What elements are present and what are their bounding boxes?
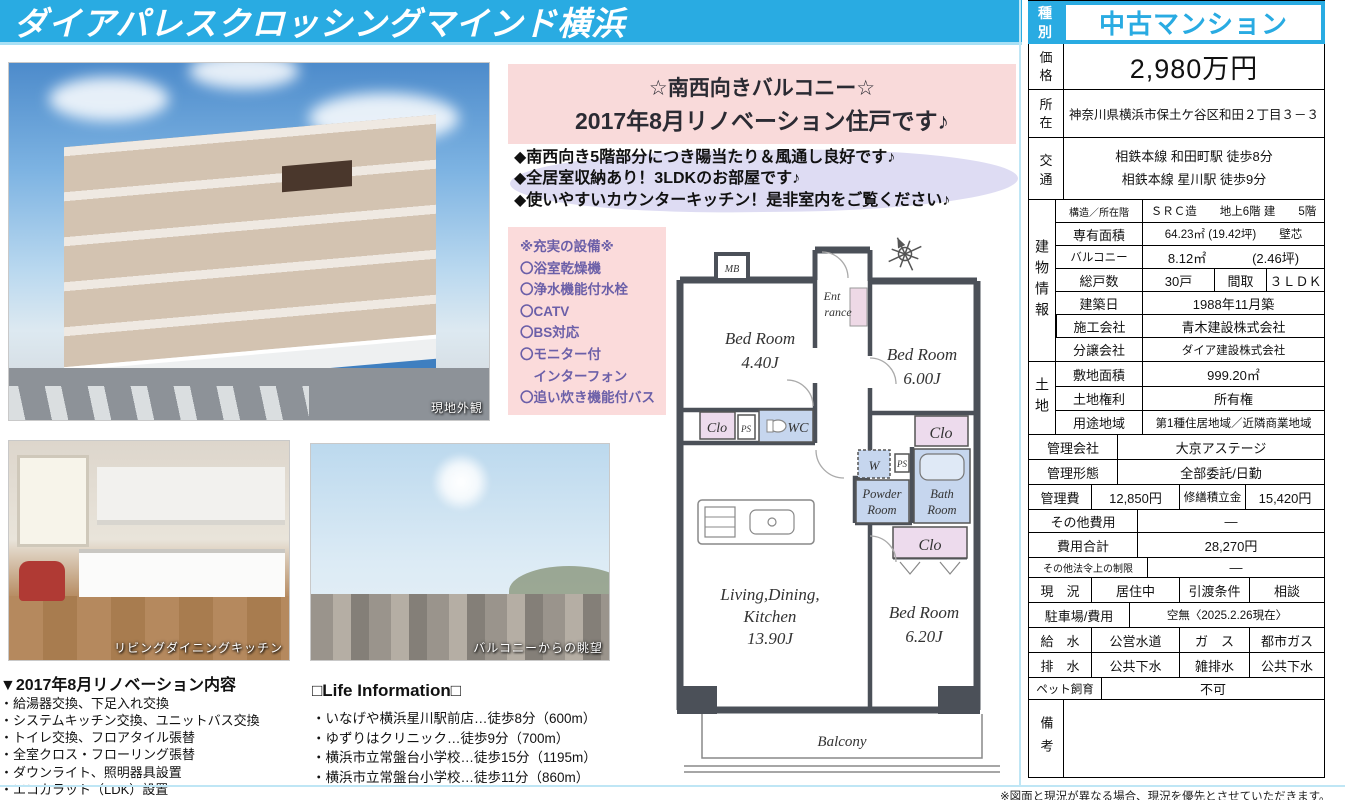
- ldk-label2: Kitchen: [743, 607, 797, 626]
- handover-label: 引渡条件: [1179, 578, 1249, 602]
- life-info-item: ・いなげや横浜星川駅前店…徒歩8分（600m）: [312, 709, 677, 729]
- balcony-label: Balcony: [817, 734, 866, 750]
- photo-caption: 現地外観: [431, 399, 483, 416]
- wc-label: WC: [788, 421, 810, 436]
- horizontal-divider: [0, 785, 1345, 787]
- row-parking: 駐車場/費用 空無〈2025.2.26現在〉: [1028, 603, 1325, 628]
- mgmt-type-value: 全部委託/日勤: [1117, 460, 1324, 484]
- notes-label: 備考: [1029, 700, 1063, 777]
- equipment-item: 〇モニター付: [520, 344, 666, 366]
- entrance-label: rance: [824, 305, 852, 319]
- equipment-title: ※充実の設備※: [520, 236, 666, 258]
- row-sewage: 排 水 公共下水 雑排水 公共下水: [1028, 653, 1325, 678]
- bed3-size: 6.20J: [905, 627, 944, 646]
- total-fee-label: 費用合計: [1029, 533, 1137, 557]
- renovation-item: ・全室クロス・フローリング張替: [0, 746, 312, 763]
- handover-value: 相談: [1249, 578, 1324, 602]
- entrance-label: Ent: [823, 289, 841, 303]
- window-shape: [17, 455, 89, 547]
- balcony-label: バルコニー: [1056, 246, 1142, 268]
- sewage-value: 公共下水: [1091, 653, 1179, 677]
- equipment-box: ※充実の設備※ 〇浴室乾燥機 〇浄水機能付水栓 〇CATV 〇BS対応 〇モニタ…: [508, 227, 666, 415]
- notes-value: [1063, 700, 1324, 777]
- toilet-tank: [767, 420, 773, 432]
- row-location: 所在 神奈川県横浜市保土ケ谷区和田２丁目３－３: [1028, 90, 1325, 138]
- cabinet-shape: [97, 467, 285, 525]
- bed3-label: Bed Room: [889, 603, 959, 622]
- mb-label: MB: [724, 264, 739, 275]
- equipment-item: 〇浴室乾燥機: [520, 258, 666, 280]
- flyer-page: ダイアパレスクロッシングマインド横浜 現地外観 ☆南西向きバルコニー☆ 2017…: [0, 0, 1345, 800]
- zoning-value: 第1種住居地域／近隣商業地域: [1142, 411, 1324, 434]
- renovation-title: ▼2017年8月リノベーション内容: [0, 671, 312, 695]
- property-title: ダイアパレスクロッシングマインド横浜: [0, 0, 625, 45]
- equipment-item: 〇浄水機能付水栓: [520, 279, 666, 301]
- layout-label: 間取: [1214, 269, 1266, 291]
- built-label: 建築日: [1056, 292, 1142, 314]
- row-mgmt-type: 管理形態 全部委託/日勤: [1028, 460, 1325, 485]
- location-value: 神奈川県横浜市保土ケ谷区和田２丁目３－３: [1063, 90, 1324, 137]
- constructor-label2: 施工会社: [1056, 315, 1142, 337]
- balcony-value: 8.12㎡ (2.46坪): [1142, 246, 1324, 268]
- life-info-item: ・ゆずりはクリニック…徒歩9分（700m）: [312, 729, 677, 749]
- row-mgmt-fee: 管理費 12,850円 修繕積立金 15,420円: [1028, 485, 1325, 510]
- bath-label2: Room: [926, 503, 956, 517]
- row-area: 専有面積 64.23㎡ (19.42坪) 壁芯: [1056, 222, 1324, 245]
- type-label: 種別: [1028, 1, 1062, 44]
- renovation-item: ・給湯器交換、下足入れ交換: [0, 695, 312, 712]
- units-value: 30戸: [1142, 269, 1214, 291]
- exterior-photo: 現地外観: [8, 62, 490, 421]
- parking-label: 駐車場/費用: [1029, 603, 1129, 627]
- photo-caption: バルコニーからの眺望: [473, 639, 603, 656]
- other-fee-value: —: [1137, 510, 1324, 532]
- row-other-fee: その他費用 —: [1028, 510, 1325, 533]
- compass-icon: [881, 230, 929, 278]
- highlight-item: ◆使いやすいカウンターキッチン！是非室内をご覧ください♪: [514, 190, 1024, 211]
- mgmt-company-value: 大京アステージ: [1117, 435, 1324, 459]
- pets-value: 不可: [1101, 678, 1324, 699]
- mgmt-fee-label: 管理費: [1029, 485, 1091, 509]
- sun-glare: [431, 452, 491, 512]
- bed2-label: Bed Room: [887, 345, 957, 364]
- access-line1: 相鉄本線 和田町駅 徒歩8分: [1115, 146, 1272, 168]
- access-line2: 相鉄本線 星川駅 徒歩9分: [1122, 169, 1266, 191]
- powder-label2: Room: [866, 503, 896, 517]
- gas-label: ガ ス: [1179, 628, 1249, 652]
- row-access: 交通 相鉄本線 和田町駅 徒歩8分 相鉄本線 星川駅 徒歩9分: [1028, 138, 1325, 200]
- pets-label: ペット飼育: [1029, 678, 1101, 699]
- stove-icon: [705, 507, 735, 537]
- highlight-item: ◆全居室収納あり！3LDKのお部屋です♪: [514, 168, 1024, 189]
- area-label: 専有面積: [1056, 223, 1142, 245]
- price-label: 価格: [1029, 44, 1063, 89]
- area-value: 64.23㎡ (19.42坪) 壁芯: [1142, 223, 1324, 245]
- cloud-shape: [189, 62, 299, 89]
- washer-label: W: [869, 458, 881, 473]
- balcony-tsubo: (2.46坪): [1252, 248, 1299, 267]
- callout-line1: ☆南西向きバルコニー☆: [649, 72, 875, 102]
- sewage-label: 排 水: [1029, 653, 1091, 677]
- group-land: 土地 敷地面積 999.20㎡ 土地権利 所有権 用途地域 第1種住居地域／近隣…: [1028, 362, 1325, 435]
- building-group-label: 建物情報: [1029, 200, 1055, 361]
- gas-value: 都市ガス: [1249, 628, 1324, 652]
- developer-value: ダイア建設株式会社: [1142, 338, 1324, 361]
- row-pets: ペット飼育 不可: [1028, 678, 1325, 700]
- structure-label: 構造／所在階: [1056, 200, 1142, 222]
- developer-label: 分譲会社: [1056, 338, 1142, 361]
- renovation-block: ▼2017年8月リノベーション内容 ・給湯器交換、下足入れ交換 ・システムキッチ…: [0, 671, 312, 798]
- units-label: 総戸数: [1056, 269, 1142, 291]
- equipment-item: インターフォン: [520, 366, 666, 388]
- counter-shape: [79, 549, 285, 597]
- row-developer: 分譲会社 ダイア建設株式会社: [1056, 337, 1324, 361]
- sink-icon: [750, 510, 794, 534]
- rooftop-sign: [282, 160, 352, 192]
- repair-fund-value: 15,420円: [1245, 485, 1324, 509]
- floor-plan: MB Ent rance Bed Room 4.40J Bed: [672, 228, 1012, 784]
- vertical-divider: [1019, 0, 1021, 785]
- equipment-item: 〇追い炊き機能付バス: [520, 387, 666, 409]
- mgmt-fee-value: 12,850円: [1091, 485, 1179, 509]
- info-table: 種別 中古マンション 価格 2,980万円 所在 神奈川県横浜市保土ケ谷区和田２…: [1028, 0, 1325, 778]
- floor-plan-svg: MB Ent rance Bed Room 4.40J Bed: [672, 228, 1012, 784]
- crosswalk: [9, 386, 309, 420]
- structure-value: ＳＲＣ造 地上6階 建 5階: [1142, 200, 1324, 222]
- row-units: 総戸数 30戸 間取 ３ＬＤＫ: [1056, 268, 1324, 291]
- gray-water-value: 公共下水: [1249, 653, 1324, 677]
- row-built: 建築日 1988年11月築: [1056, 291, 1324, 314]
- repair-fund-label: 修繕積立金: [1179, 485, 1245, 509]
- pillar: [677, 686, 717, 714]
- water-label: 給 水: [1029, 628, 1091, 652]
- highlight-bullets: ◆南西向き5階部分につき陽当たり＆風通し良好です♪ ◆全居室収納あり！3LDKの…: [514, 147, 1024, 211]
- closet-door-mark: [900, 562, 920, 574]
- flyer-header: ダイアパレスクロッシングマインド横浜: [0, 0, 1022, 45]
- bed1-label: Bed Room: [725, 329, 795, 348]
- row-rights: 土地権利 所有権: [1056, 386, 1324, 410]
- row-site-area: 敷地面積 999.20㎡: [1056, 362, 1324, 386]
- rights-value: 所有権: [1142, 387, 1324, 410]
- site-area-value: 999.20㎡: [1142, 362, 1324, 386]
- row-type: 種別 中古マンション: [1028, 0, 1325, 44]
- kitchen-photo: リビングダイニングキッチン: [8, 440, 290, 661]
- zoning-label: 用途地域: [1056, 411, 1142, 434]
- ldk-size: 13.90J: [747, 629, 794, 648]
- legal-value: —: [1147, 558, 1324, 577]
- closet-2-label: Clo: [929, 425, 952, 442]
- land-group-label: 土地: [1029, 362, 1055, 434]
- closet-1-label: Clo: [707, 421, 727, 436]
- bath-label1: Bath: [930, 487, 954, 501]
- access-label: 交通: [1029, 138, 1063, 199]
- price-value: 2,980万円: [1063, 44, 1324, 89]
- renovation-item: ・システムキッチン交換、ユニットバス交換: [0, 712, 312, 729]
- access-value: 相鉄本線 和田町駅 徒歩8分 相鉄本線 星川駅 徒歩9分: [1063, 138, 1324, 199]
- bed2-size: 6.00J: [903, 369, 942, 388]
- closet-door-mark: [940, 562, 960, 574]
- cloud-shape: [49, 77, 169, 121]
- renovation-item: ・エコカラット（LDK）設置: [0, 781, 312, 798]
- bathtub-icon: [920, 454, 964, 480]
- photo-caption: リビングダイニングキッチン: [114, 639, 283, 656]
- row-water: 給 水 公営水道 ガ ス 都市ガス: [1028, 628, 1325, 653]
- parking-value: 空無〈2025.2.26現在〉: [1129, 603, 1324, 627]
- equipment-item: 〇BS対応: [520, 322, 666, 344]
- total-fee-value: 28,270円: [1137, 533, 1324, 557]
- callout-box: ☆南西向きバルコニー☆ 2017年8月リノベーション住戸です♪: [508, 64, 1016, 144]
- renovation-item: ・ダウンライト、照明器具設置: [0, 764, 312, 781]
- view-photo: バルコニーからの眺望: [310, 443, 610, 661]
- pillar: [938, 686, 980, 714]
- ps-2-label: PS: [896, 459, 907, 469]
- kitchen-counter: [698, 500, 814, 544]
- legal-label: その他法令上の制限: [1029, 558, 1147, 577]
- type-value: 中古マンション: [1062, 1, 1325, 44]
- mgmt-company-label: 管理会社: [1029, 435, 1117, 459]
- other-fee-label: その他費用: [1029, 510, 1137, 532]
- rights-label: 土地権利: [1056, 387, 1142, 410]
- powder-label1: Powder: [862, 487, 902, 501]
- ps-1-label: PS: [740, 424, 751, 434]
- row-structure: 構造／所在階 ＳＲＣ造 地上6階 建 5階: [1056, 200, 1324, 222]
- ldk-label1: Living,Dining,: [719, 585, 819, 604]
- site-area-label: 敷地面積: [1056, 362, 1142, 386]
- callout-line2: 2017年8月リノベーション住戸です♪: [575, 102, 949, 136]
- mgmt-type-label: 管理形態: [1029, 460, 1117, 484]
- chair-shape: [19, 561, 65, 601]
- row-price: 価格 2,980万円: [1028, 44, 1325, 90]
- layout-value: ３ＬＤＫ: [1266, 269, 1324, 291]
- water-value: 公営水道: [1091, 628, 1179, 652]
- row-constructor: 管理会社 施工会社 青木建設株式会社: [1056, 314, 1324, 337]
- constructor-value: 青木建設株式会社: [1142, 315, 1324, 337]
- row-balcony: バルコニー 8.12㎡ (2.46坪): [1056, 245, 1324, 268]
- life-info-item: ・横浜市立常盤台小学校…徒歩15分（1195m）: [312, 748, 677, 768]
- row-total-fee: 費用合計 28,270円: [1028, 533, 1325, 558]
- balcony-area: 8.12㎡: [1168, 248, 1206, 267]
- status-label: 現 況: [1029, 578, 1091, 602]
- row-notes: 備考: [1028, 700, 1325, 778]
- row-zoning: 用途地域 第1種住居地域／近隣商業地域: [1056, 410, 1324, 434]
- life-info-block: □Life Information□ ・いなげや横浜星川駅前店…徒歩8分（600…: [312, 681, 677, 787]
- bed1-size: 4.40J: [741, 353, 780, 372]
- built-value: 1988年11月築: [1142, 292, 1324, 314]
- highlight-item: ◆南西向き5階部分につき陽当たり＆風通し良好です♪: [514, 147, 1024, 168]
- equipment-item: 〇CATV: [520, 301, 666, 323]
- closet-3-label: Clo: [918, 537, 941, 554]
- row-status: 現 況 居住中 引渡条件 相談: [1028, 578, 1325, 603]
- row-legal: その他法令上の制限 —: [1028, 558, 1325, 578]
- life-info-title: □Life Information□: [312, 681, 677, 701]
- entrance-door: [850, 288, 867, 326]
- gray-water-label: 雑排水: [1179, 653, 1249, 677]
- footnote: ※図面と現況が異なる場合、現況を優先とさせていただきます。: [1000, 788, 1345, 800]
- renovation-item: ・トイレ交換、フロアタイル張替: [0, 729, 312, 746]
- group-building: 建物情報 構造／所在階 ＳＲＣ造 地上6階 建 5階 専有面積 64.23㎡ (…: [1028, 200, 1325, 362]
- status-value: 居住中: [1091, 578, 1179, 602]
- location-label: 所在: [1029, 90, 1063, 137]
- row-mgmt-company: 管理会社 大京アステージ: [1028, 435, 1325, 460]
